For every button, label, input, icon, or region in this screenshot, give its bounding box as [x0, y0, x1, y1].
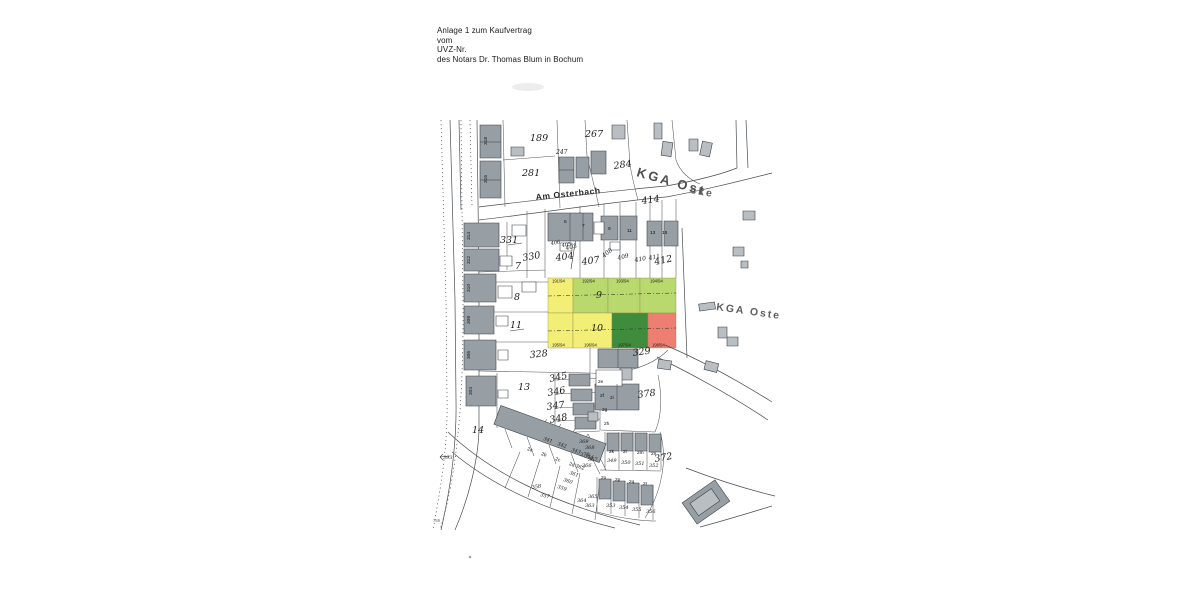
house-number-2r: 2r	[643, 481, 648, 487]
house-number-15: 15	[662, 230, 668, 236]
parcel-label-346: 346	[547, 385, 567, 399]
kga-label-main-tail: cke	[689, 184, 714, 200]
parcel-label-365: 365	[588, 494, 598, 500]
parcel-label-318: 318	[483, 137, 489, 145]
building-rotated	[661, 141, 673, 156]
fraction-label: 191/94	[552, 279, 565, 284]
house-number-2k: 2k	[609, 449, 615, 455]
house-number-9: 9	[608, 226, 611, 232]
house-number-11: 11	[627, 228, 632, 234]
parcel-label-378: 378	[637, 388, 656, 401]
parcel-label-359: 359	[556, 484, 568, 493]
parcel-label-352: 352	[649, 463, 659, 469]
buildings-light	[511, 123, 755, 421]
parcel-label-304: 304	[468, 387, 474, 395]
parcel-label-414: 414	[640, 194, 660, 208]
fraction-label: 195/94	[552, 343, 565, 348]
parcel-label-353: 353	[606, 503, 616, 509]
house-number-2e: 2e	[598, 379, 604, 385]
parcel-label-759: 759	[433, 518, 441, 523]
parcel-label-310: 310	[466, 284, 472, 292]
parcel-label-11: 11	[510, 320, 522, 331]
parcel-label-354: 354	[619, 505, 629, 511]
kga-hut	[657, 359, 671, 370]
kga-hut	[699, 302, 716, 311]
house-number-2n: 2n	[651, 451, 657, 457]
scanned-document-page: Anlage 1 zum Kaufvertrag vom UVZ-Nr. des…	[0, 0, 1200, 600]
house-number-2h: 2h	[604, 421, 610, 427]
house-number-2g: 2g	[602, 407, 608, 413]
house-number-2q: 2q	[629, 479, 635, 485]
parcel-label-308: 308	[466, 316, 472, 324]
parcel-label-366: 366	[582, 463, 592, 469]
parcel-label-349: 349	[607, 458, 617, 464]
parcel-label-8: 8	[514, 292, 520, 303]
kga-hut	[704, 361, 719, 373]
parcel-label-356: 356	[646, 509, 656, 515]
scan-speck	[469, 556, 471, 558]
street-label-am-osterbach: Am Osterbach	[535, 185, 601, 202]
parcel-label-331: 331	[500, 235, 518, 246]
parcel-label-329: 329	[632, 346, 651, 359]
parcel-label-355: 355	[632, 507, 642, 513]
cadastral-map: Am Osterbach KGA Ost cke KGA Oste 189 26…	[0, 0, 1200, 600]
parcel-label-364: 364	[577, 498, 587, 504]
parcel-label-409: 409	[616, 252, 630, 262]
house-number-7: 7	[582, 223, 585, 229]
parcel-label-367: 367	[588, 457, 598, 463]
house-number-5: 5	[564, 219, 567, 225]
parcel-label-368: 368	[585, 445, 595, 451]
parcel-label-247: 247	[555, 149, 568, 156]
parcel-label-10: 10	[591, 323, 603, 334]
parcel-label-347: 347	[546, 399, 566, 413]
parcel-label-351: 351	[635, 461, 645, 467]
parcel-label-369: 369	[579, 439, 589, 445]
parcel-label-393: 393	[443, 455, 453, 461]
house-number-2b: 2b	[540, 451, 547, 458]
parcel-label-330: 330	[522, 250, 542, 264]
parcel-label-312: 312	[466, 256, 472, 264]
parcel-label-267: 267	[584, 129, 604, 140]
parcel-label-370: 370	[580, 452, 590, 458]
fraction-label: 193/94	[616, 279, 629, 284]
highlighted-parcels	[548, 278, 676, 348]
house-number-2o: 2o	[601, 475, 607, 481]
parcel-label-306: 306	[466, 351, 472, 359]
house-number-2m: 2m	[637, 450, 644, 456]
parcel-label-350: 350	[621, 460, 631, 466]
parcel-label-358: 358	[531, 483, 541, 491]
fraction-label: 198/94	[652, 343, 665, 348]
parcel-label-316: 316	[483, 175, 489, 183]
parcel-label-189: 189	[530, 133, 548, 144]
fraction-label: 197/94	[618, 343, 631, 348]
parcel-label-407: 407	[580, 254, 601, 268]
parcel-label-410: 410	[633, 255, 647, 264]
parcel-label-357: 357	[539, 492, 551, 500]
fraction-label: 194/94	[650, 279, 663, 284]
parcel-label-404: 404	[554, 251, 574, 265]
parcel-label-314: 314	[466, 232, 472, 240]
fraction-label: 192/94	[582, 279, 595, 284]
parcel-label-360: 360	[562, 477, 574, 486]
house-number-2f: 2f	[600, 393, 605, 399]
parcel-label-9: 9	[596, 290, 602, 301]
parcel-label-348: 348	[549, 412, 569, 426]
house-number-13: 13	[650, 230, 656, 236]
parcel-label-284: 284	[612, 159, 632, 173]
parcel-label-328: 328	[529, 348, 548, 361]
parcel-label-13: 13	[518, 382, 530, 393]
building-rotated	[700, 141, 713, 157]
house-number-2i: 2i	[610, 395, 614, 401]
fraction-label: 196/94	[584, 343, 597, 348]
scan-smudge	[512, 83, 544, 91]
house-number-2l: 2l	[623, 449, 627, 455]
parcel-label-281: 281	[521, 168, 540, 179]
parcel-label-345: 345	[548, 370, 568, 385]
house-number-2p: 2p	[615, 477, 621, 483]
kga-label-right: KGA Oste	[716, 301, 782, 322]
parcel-label-7: 7	[515, 261, 522, 272]
parcel-label-14: 14	[472, 425, 484, 436]
